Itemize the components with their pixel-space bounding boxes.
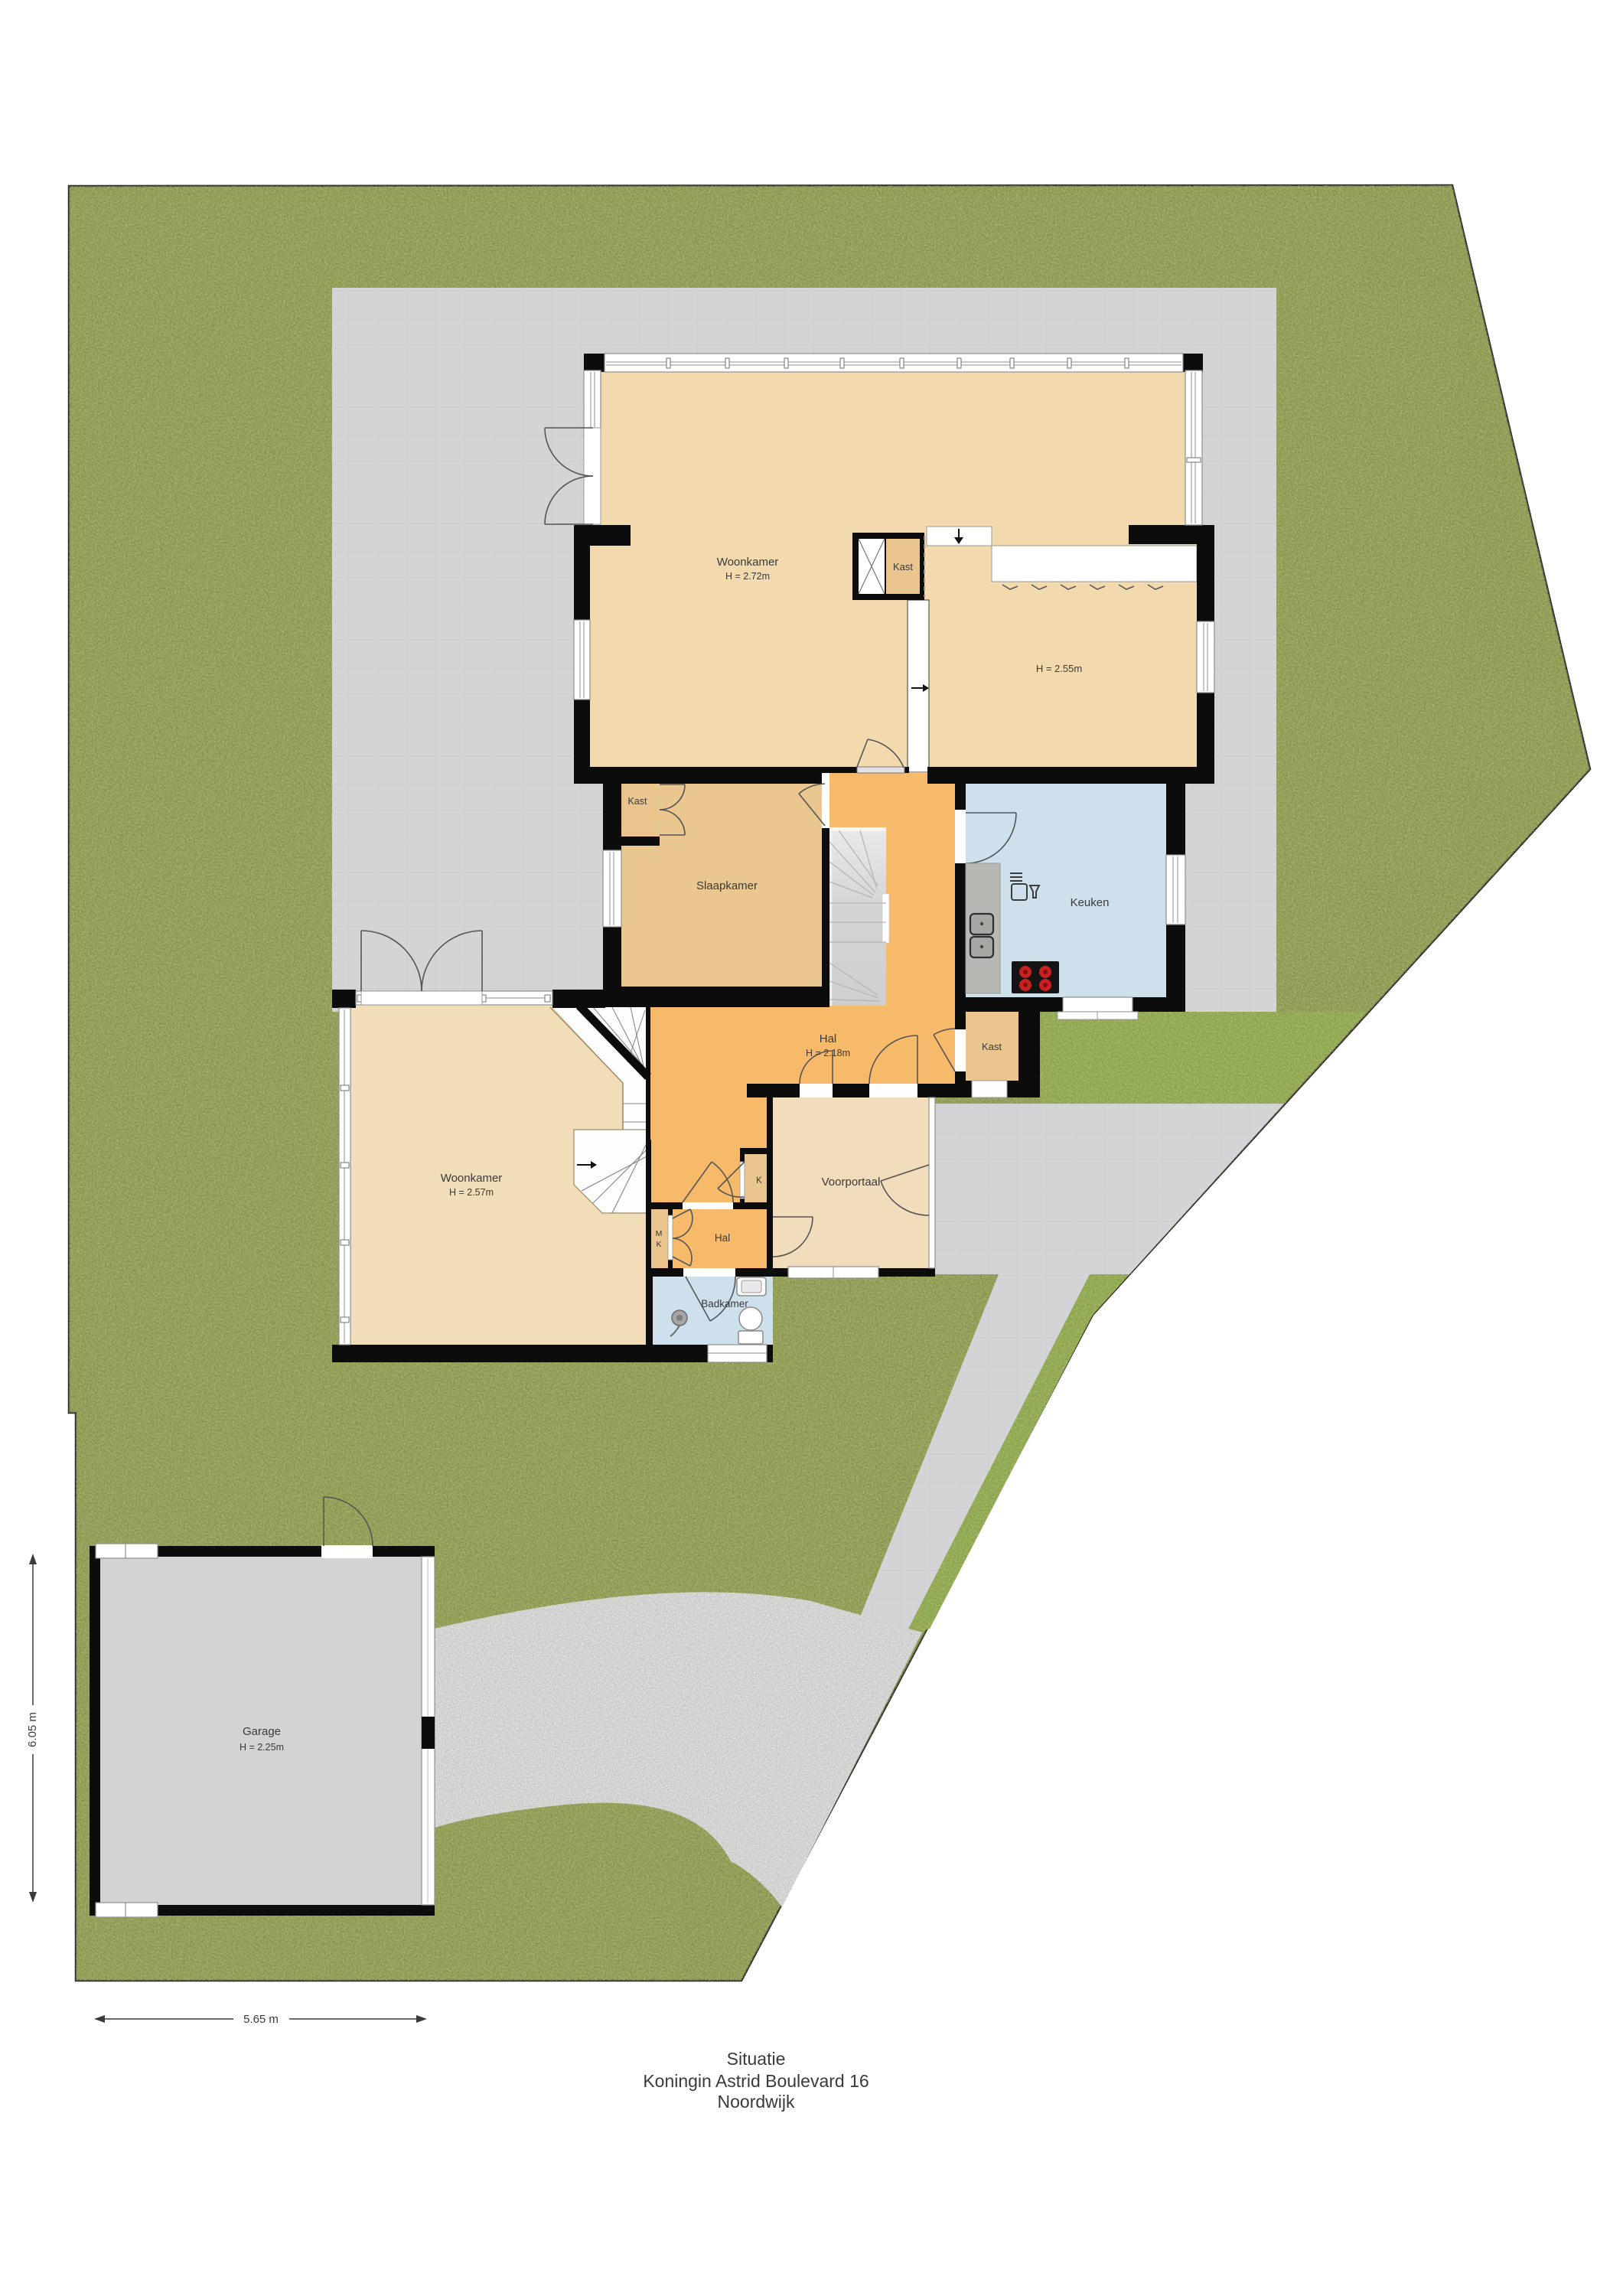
svg-text:Hal: Hal — [820, 1032, 837, 1045]
svg-text:Koningin Astrid Boulevard 16: Koningin Astrid Boulevard 16 — [643, 2071, 869, 2091]
svg-text:5.65 m: 5.65 m — [243, 2013, 279, 2026]
svg-text:Slaapkamer: Slaapkamer — [696, 879, 758, 892]
svg-text:Woonkamer: Woonkamer — [717, 556, 779, 569]
svg-text:K: K — [756, 1176, 762, 1186]
svg-text:Hal: Hal — [715, 1232, 730, 1244]
svg-text:H = 2.55m: H = 2.55m — [1036, 663, 1082, 674]
svg-text:Kast: Kast — [627, 796, 647, 807]
svg-text:H = 2.25m: H = 2.25m — [240, 1742, 284, 1753]
svg-text:Woonkamer: Woonkamer — [441, 1172, 503, 1185]
svg-text:Situatie: Situatie — [727, 2049, 786, 2069]
svg-text:Kast: Kast — [893, 561, 913, 572]
svg-text:Garage: Garage — [243, 1725, 281, 1738]
svg-text:H = 2.72m: H = 2.72m — [725, 571, 770, 582]
svg-text:Noordwijk: Noordwijk — [718, 2092, 795, 2112]
svg-text:H = 2.57m: H = 2.57m — [449, 1187, 494, 1198]
svg-text:H = 2.18m: H = 2.18m — [806, 1048, 850, 1058]
svg-text:6.05 m: 6.05 m — [26, 1712, 39, 1747]
svg-text:Keuken: Keuken — [1071, 896, 1110, 909]
svg-text:Badkamer: Badkamer — [701, 1298, 748, 1309]
svg-text:M: M — [656, 1229, 663, 1238]
svg-text:K: K — [656, 1240, 661, 1249]
svg-text:Kast: Kast — [982, 1041, 1002, 1052]
svg-text:Voorportaal: Voorportaal — [822, 1176, 881, 1189]
